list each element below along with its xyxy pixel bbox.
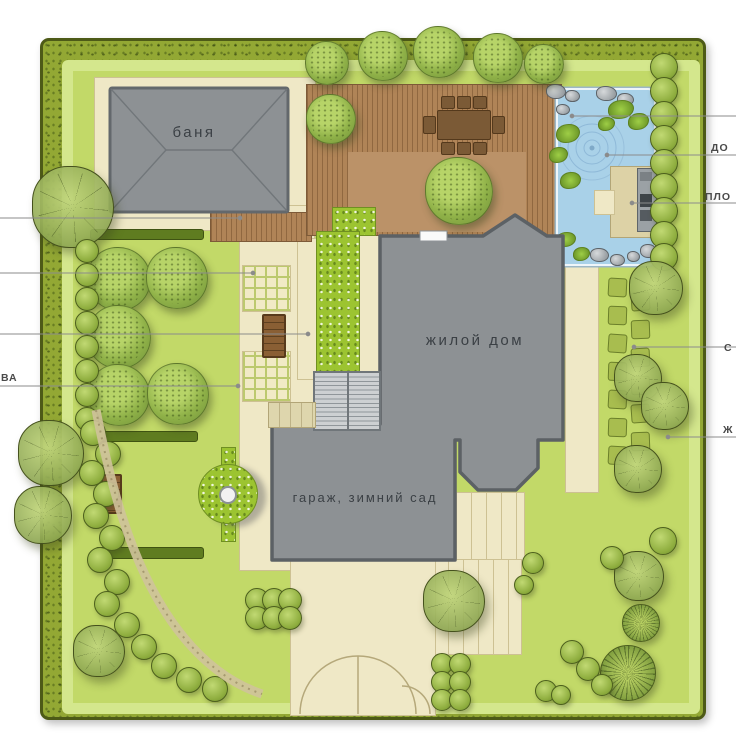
callout-label-left: ВА: [1, 372, 18, 384]
callout-label-right-3: С: [724, 342, 733, 354]
leader-lines: [0, 114, 736, 439]
callout-label-right-1: ДО: [711, 142, 729, 154]
gate-arcs: [300, 656, 430, 714]
gravel-path-texture: [96, 410, 262, 694]
gravel-path: [96, 410, 262, 694]
landscape-plan: баня жилой дом гараж, зимний сад: [0, 0, 736, 736]
callout-label-right-4: Ж: [722, 424, 734, 436]
callout-label-right-2: ПЛО: [705, 191, 731, 203]
annotation-layer: ВА ДО ПЛО С Ж: [0, 0, 736, 736]
